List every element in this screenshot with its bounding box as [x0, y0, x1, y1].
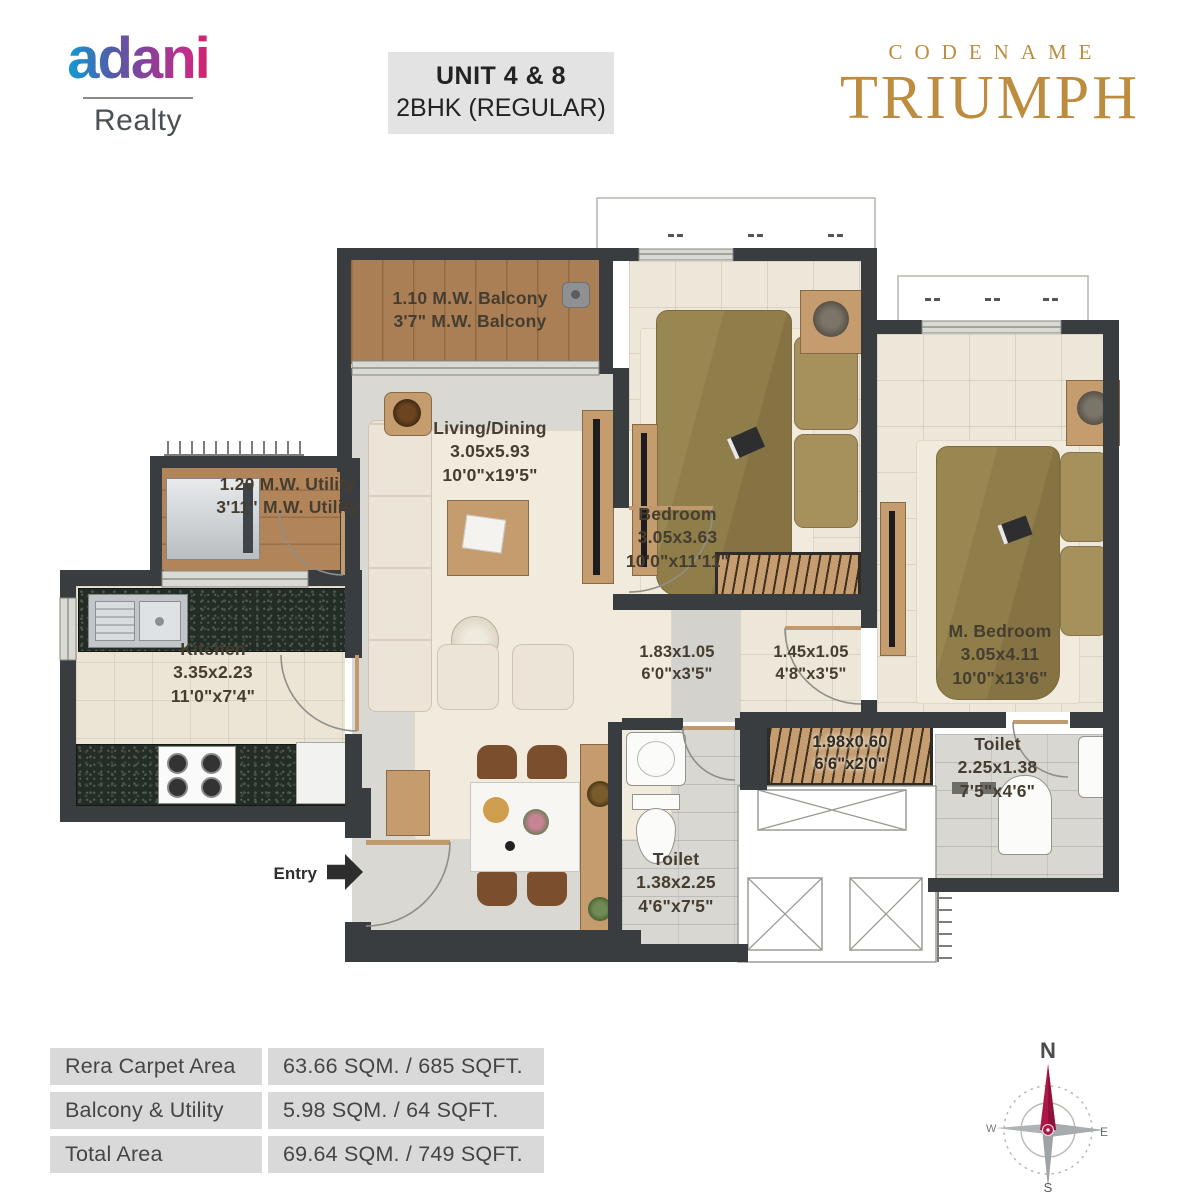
master-bedroom-label: M. Bedroom 3.05x4.11 10'0"x13'6"	[910, 620, 1090, 690]
utility-label: 1.20 M.W. Utility 3'11" M.W. Utility	[195, 473, 380, 520]
living-label: Living/Dining 3.05x5.93 10'0"x19'5"	[400, 417, 580, 487]
compass-west-label: W	[986, 1123, 997, 1135]
floorplan-page: adani Realty UNIT 4 & 8 2BHK (REGULAR) C…	[0, 0, 1200, 1200]
toilet-master-label: Toilet 2.25x1.38 7'5"x4'6"	[935, 733, 1060, 803]
kitchen-label: Kitchen 3.35x2.23 11'0"x7'4"	[128, 638, 298, 708]
entry-arrow-icon	[327, 853, 363, 891]
bedroom-label: Bedroom 3.05x3.63 10'0"x11'11"	[600, 503, 755, 573]
balcony-label: 1.10 M.W. Balcony 3'7" M.W. Balcony	[355, 287, 585, 334]
compass-east-label: E	[1100, 1125, 1108, 1139]
passage1-label: 1.83x1.05 6'0"x3'5"	[617, 641, 737, 685]
toilet-common-label: Toilet 1.38x2.25 4'6"x7'5"	[616, 848, 736, 918]
compass-icon: N E W S	[986, 1042, 1110, 1194]
compass-south-label: S	[1044, 1180, 1053, 1194]
passage2-label: 1.45x1.05 4'8"x3'5"	[751, 641, 871, 685]
walls-windows-doors	[0, 0, 1200, 1200]
entry-label: Entry	[255, 864, 317, 884]
compass-north-label: N	[1040, 1042, 1056, 1063]
